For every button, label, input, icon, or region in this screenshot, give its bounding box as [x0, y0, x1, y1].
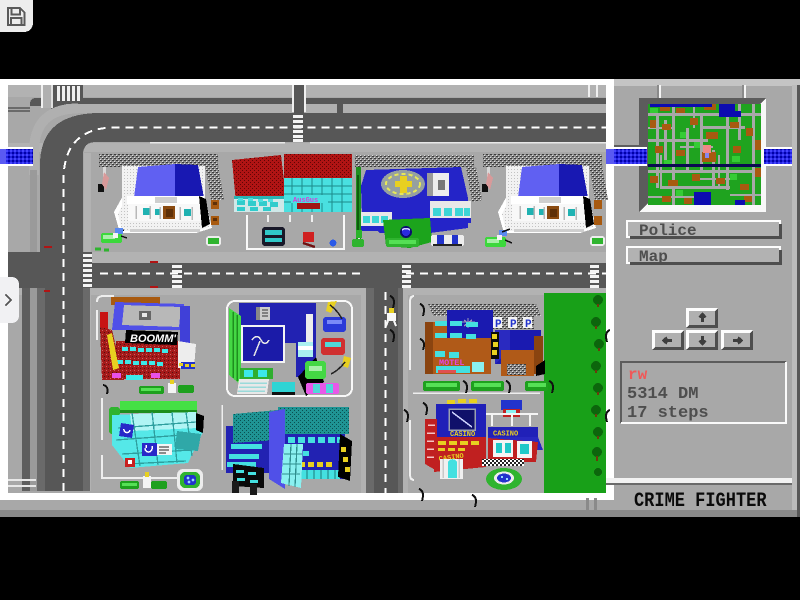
svg-text:Map: Map	[639, 248, 668, 266]
svg-text:Police: Police	[639, 222, 697, 240]
svg-text:P: P	[510, 319, 517, 331]
svg-text:BOOMM': BOOMM'	[130, 333, 176, 345]
svg-text:P: P	[495, 319, 502, 331]
svg-text:5314 DM: 5314 DM	[627, 385, 698, 404]
svg-text:17 steps: 17 steps	[627, 404, 709, 423]
svg-text:P: P	[525, 319, 532, 331]
svg-text:rw: rw	[628, 366, 648, 384]
svg-text:CRIME FIGHTER: CRIME FIGHTER	[634, 489, 767, 513]
